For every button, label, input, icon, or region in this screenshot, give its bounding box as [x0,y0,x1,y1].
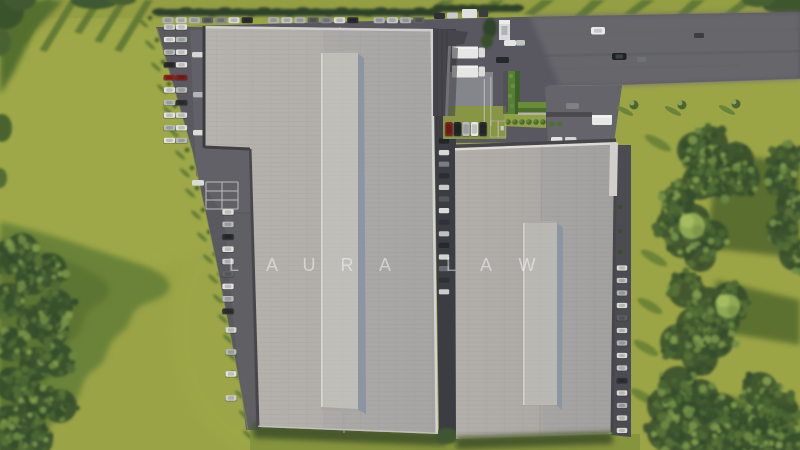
svg-text:W: W [519,255,536,275]
svg-text:L: L [229,255,239,275]
svg-text:U: U [303,255,316,275]
svg-text:A: A [266,255,278,275]
svg-text:A: A [379,255,391,275]
svg-text:L: L [446,255,456,275]
svg-text:A: A [480,255,492,275]
svg-text:R: R [341,255,354,275]
